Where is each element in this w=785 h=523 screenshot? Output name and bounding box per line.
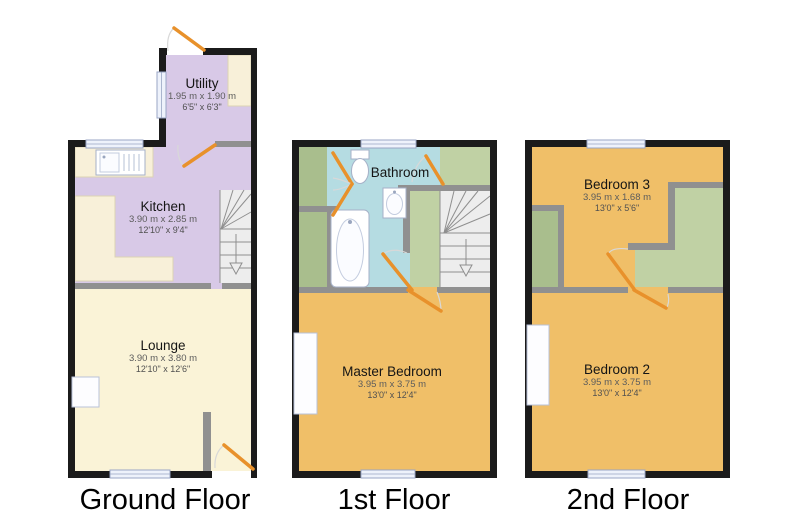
room-label-bedroom-3: Bedroom 3 3.95 m x 1.68 m 13'0" x 5'6" <box>583 177 651 214</box>
room-label-kitchen: Kitchen 3.90 m x 2.85 m 12'10" x 9'4" <box>129 199 197 236</box>
room-label-bedroom-2: Bedroom 2 3.95 m x 3.75 m 13'0" x 12'4" <box>583 362 651 399</box>
room-dims-metric: 3.95 m x 3.75 m <box>583 377 651 388</box>
second-floor-title: 2nd Floor <box>567 484 690 517</box>
room-label-lounge: Lounge 3.90 m x 3.80 m 12'10" x 12'6" <box>129 338 197 375</box>
first-floor-plan <box>292 140 497 478</box>
room-name: Utility <box>168 76 236 91</box>
room-name: Bedroom 2 <box>583 362 651 377</box>
bedroom2-side-window <box>527 325 549 405</box>
basin-sink <box>383 188 406 218</box>
room-dims-imperial: 6'5" x 6'3" <box>168 102 236 113</box>
ground-floor-title: Ground Floor <box>80 484 251 517</box>
room-dims-metric: 3.95 m x 1.68 m <box>583 192 651 203</box>
bedroom3-closet <box>532 211 558 287</box>
room-label-bathroom: Bathroom <box>371 165 430 180</box>
room-name: Bathroom <box>371 165 430 180</box>
room-dims-metric: 3.95 m x 3.75 m <box>342 379 442 390</box>
room-dims-imperial: 13'0" x 12'4" <box>583 388 651 399</box>
first-floor-title: 1st Floor <box>338 484 451 517</box>
room-name: Master Bedroom <box>342 364 442 379</box>
lounge-fireplace <box>72 377 99 407</box>
room-name: Lounge <box>129 338 197 353</box>
first-staircase <box>440 191 490 287</box>
room-dims-imperial: 12'10" x 9'4" <box>129 225 197 236</box>
closet-left <box>299 212 327 287</box>
stairwell <box>675 188 723 287</box>
room-label-utility: Utility 1.95 m x 1.90 m 6'5" x 6'3" <box>168 76 236 113</box>
ground-staircase <box>220 190 251 283</box>
room-dims-imperial: 13'0" x 5'6" <box>583 203 651 214</box>
room-dims-imperial: 13'0" x 12'4" <box>342 390 442 401</box>
room-label-master-bedroom: Master Bedroom 3.95 m x 3.75 m 13'0" x 1… <box>342 364 442 401</box>
kitchen-sink <box>96 150 145 175</box>
landing <box>410 191 440 287</box>
room-name: Kitchen <box>129 199 197 214</box>
closet-top-left <box>299 147 327 206</box>
floorplan-page: Utility 1.95 m x 1.90 m 6'5" x 6'3" Kitc… <box>0 0 785 523</box>
room-name: Bedroom 3 <box>583 177 651 192</box>
room-dims-metric: 3.90 m x 2.85 m <box>129 214 197 225</box>
floorplan-canvas <box>0 0 785 523</box>
room-dims-imperial: 12'10" x 12'6" <box>129 364 197 375</box>
toilet <box>351 150 369 184</box>
closet-top-right <box>440 147 490 185</box>
bathtub <box>331 210 369 287</box>
room-dims-metric: 3.90 m x 3.80 m <box>129 353 197 364</box>
stairwell-landing <box>635 250 675 287</box>
master-bedroom-side-window <box>294 333 317 414</box>
room-dims-metric: 1.95 m x 1.90 m <box>168 91 236 102</box>
utility-entry-door <box>174 28 204 50</box>
